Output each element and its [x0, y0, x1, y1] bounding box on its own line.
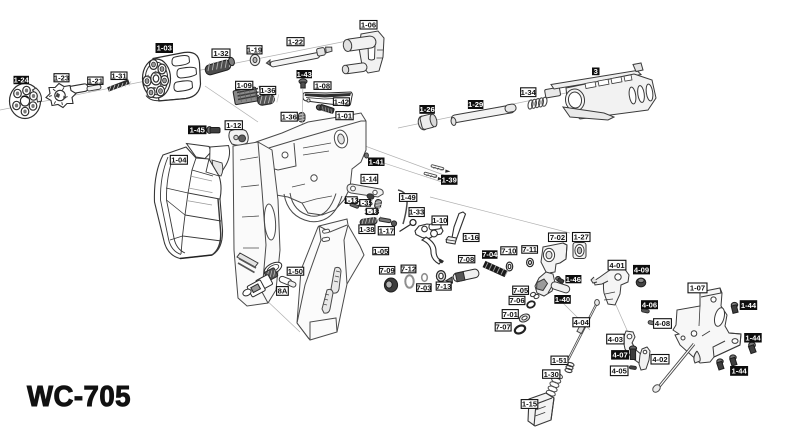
svg-text:4-03: 4-03	[608, 335, 623, 344]
svg-text:4-06: 4-06	[642, 300, 657, 309]
svg-text:1-23: 1-23	[54, 74, 69, 83]
svg-text:7-09: 7-09	[379, 266, 394, 275]
svg-text:1-27: 1-27	[574, 233, 589, 242]
svg-text:1-49: 1-49	[400, 193, 415, 202]
svg-text:1-42: 1-42	[334, 97, 349, 106]
svg-text:1-24: 1-24	[14, 76, 30, 85]
svg-text:1-40: 1-40	[555, 295, 570, 304]
svg-text:4-07: 4-07	[612, 351, 627, 360]
svg-text:1-34: 1-34	[521, 88, 537, 97]
svg-text:1-43: 1-43	[297, 70, 312, 79]
svg-text:7-08: 7-08	[459, 255, 474, 264]
svg-text:1-08: 1-08	[315, 81, 330, 90]
svg-text:1-31: 1-31	[111, 72, 127, 81]
svg-text:1-41: 1-41	[369, 157, 385, 166]
svg-text:1-01: 1-01	[337, 111, 353, 120]
svg-text:7-13: 7-13	[436, 282, 451, 291]
svg-text:1-45: 1-45	[190, 126, 206, 135]
svg-text:1-17: 1-17	[379, 226, 394, 235]
svg-text:1-36: 1-36	[260, 86, 275, 95]
svg-text:1-44: 1-44	[731, 367, 747, 376]
svg-text:7-02: 7-02	[550, 233, 565, 242]
svg-text:7-12: 7-12	[401, 265, 416, 274]
svg-text:7-06: 7-06	[509, 296, 524, 305]
svg-text:8A: 8A	[278, 287, 288, 296]
svg-text:1-51: 1-51	[552, 356, 568, 365]
svg-text:1-10: 1-10	[432, 216, 447, 225]
svg-text:1-16: 1-16	[464, 233, 479, 242]
svg-text:4-09: 4-09	[634, 265, 649, 274]
svg-text:1-03: 1-03	[157, 44, 172, 53]
svg-text:WC-705: WC-705	[27, 381, 131, 413]
svg-text:1-29: 1-29	[468, 100, 483, 109]
svg-text:1-46: 1-46	[566, 275, 581, 284]
svg-text:7-01: 7-01	[503, 310, 519, 319]
svg-text:7-04: 7-04	[482, 250, 498, 259]
svg-text:1-05: 1-05	[373, 247, 389, 256]
svg-text:1-04: 1-04	[171, 156, 187, 165]
svg-text:4-01: 4-01	[609, 261, 625, 270]
svg-text:1-14: 1-14	[362, 175, 378, 184]
svg-text:1-26: 1-26	[419, 105, 434, 114]
svg-text:3: 3	[594, 67, 598, 76]
svg-text:1-50: 1-50	[288, 267, 303, 276]
svg-text:1-06: 1-06	[361, 20, 376, 29]
svg-text:7-07: 7-07	[495, 323, 510, 332]
svg-text:1-44: 1-44	[745, 333, 761, 342]
svg-text:1-36: 1-36	[282, 112, 297, 121]
svg-text:4-08: 4-08	[655, 319, 670, 328]
svg-text:1-19: 1-19	[247, 46, 262, 55]
svg-text:1-12: 1-12	[226, 121, 241, 130]
svg-text:4-04: 4-04	[574, 318, 590, 327]
svg-text:1-32: 1-32	[213, 49, 228, 58]
svg-text:1-09: 1-09	[237, 81, 252, 90]
svg-text:1-39: 1-39	[442, 176, 457, 185]
svg-text:7-05: 7-05	[513, 286, 529, 295]
svg-text:7-11: 7-11	[522, 245, 538, 254]
svg-text:1-22: 1-22	[288, 37, 303, 46]
svg-text:1-30: 1-30	[544, 370, 559, 379]
svg-text:1-18: 1-18	[364, 207, 379, 216]
svg-text:4-05: 4-05	[612, 367, 628, 376]
svg-text:7-10: 7-10	[501, 246, 516, 255]
svg-text:1-21: 1-21	[88, 76, 104, 85]
svg-text:1-33: 1-33	[409, 208, 424, 217]
svg-text:7-03: 7-03	[416, 283, 431, 292]
svg-text:1-38: 1-38	[359, 225, 374, 234]
svg-text:1-07: 1-07	[690, 284, 705, 293]
svg-text:1-44: 1-44	[741, 301, 757, 310]
svg-text:1-15: 1-15	[522, 400, 538, 409]
svg-text:4-02: 4-02	[652, 355, 667, 364]
